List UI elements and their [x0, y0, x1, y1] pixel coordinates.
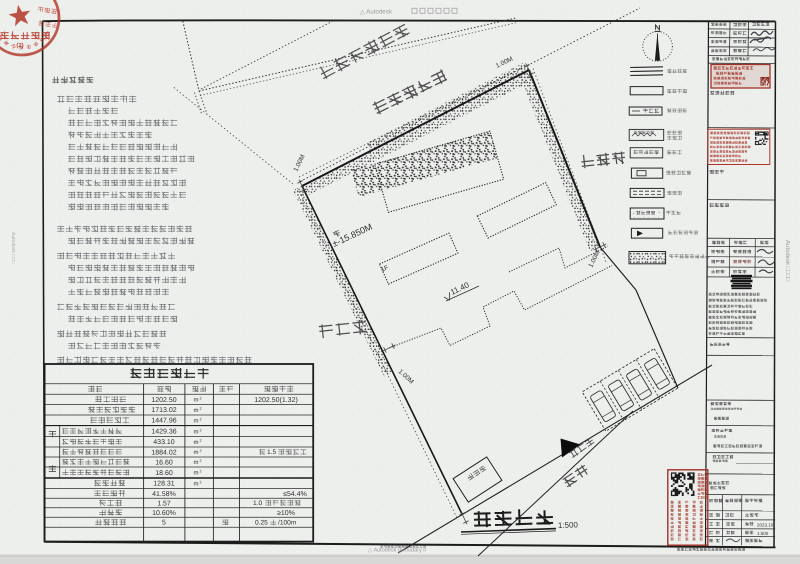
- svg-text:5: 5: [162, 520, 166, 527]
- svg-text:≤54.4%: ≤54.4%: [283, 491, 307, 498]
- svg-text:m: m: [194, 440, 199, 446]
- svg-text:≥10%: ≥10%: [277, 510, 295, 517]
- svg-text:2: 2: [200, 480, 202, 484]
- svg-text:41.58%: 41.58%: [152, 491, 176, 498]
- svg-text:2: 2: [200, 397, 202, 401]
- svg-text:Autodesk □□□: Autodesk □□□: [10, 232, 16, 263]
- svg-text:m: m: [194, 481, 199, 487]
- svg-text:128.31: 128.31: [153, 481, 175, 488]
- svg-text:2: 2: [200, 407, 202, 411]
- svg-text:2: 2: [200, 439, 202, 443]
- svg-text:2: 2: [200, 459, 202, 463]
- svg-text:2023.10: 2023.10: [757, 523, 774, 528]
- svg-text:△ Autodesk: △ Autodesk: [360, 9, 393, 16]
- svg-text:16.60: 16.60: [155, 459, 173, 466]
- svg-text:1:500: 1:500: [558, 520, 579, 530]
- svg-text:△ Autodesk gwoudary n: △ Autodesk gwoudary n: [368, 548, 426, 554]
- svg-text:1.57: 1.57: [157, 500, 171, 507]
- svg-text:2: 2: [200, 428, 202, 432]
- svg-text:1:500: 1:500: [757, 531, 769, 536]
- svg-text:/100m: /100m: [278, 519, 297, 526]
- svg-text:Autodesk □□□□: Autodesk □□□□: [784, 240, 791, 282]
- svg-text:2: 2: [200, 418, 202, 422]
- svg-text:10.60%: 10.60%: [152, 510, 176, 517]
- svg-text:m: m: [194, 408, 199, 414]
- svg-text:m: m: [194, 450, 199, 456]
- svg-text:1429.36: 1429.36: [151, 429, 176, 436]
- svg-text:1447.96: 1447.96: [151, 418, 176, 425]
- svg-text:0.25: 0.25: [255, 519, 268, 526]
- svg-text:1884.02: 1884.02: [151, 449, 176, 456]
- svg-text:m: m: [194, 398, 199, 404]
- svg-text:m: m: [194, 429, 199, 435]
- svg-text:1713.02: 1713.02: [151, 407, 176, 414]
- svg-text:m: m: [194, 419, 199, 425]
- svg-text:18.60: 18.60: [155, 470, 173, 477]
- svg-text:1202.50: 1202.50: [151, 397, 176, 404]
- svg-text:1.5: 1.5: [267, 449, 276, 456]
- svg-text:1202.50(1.32): 1202.50(1.32): [254, 396, 298, 404]
- svg-text:2: 2: [200, 449, 202, 453]
- svg-text:1.0: 1.0: [253, 500, 262, 507]
- svg-text:2: 2: [200, 470, 202, 474]
- svg-text:433.10: 433.10: [153, 439, 175, 446]
- svg-text:m: m: [194, 471, 199, 477]
- svg-text:m: m: [194, 460, 199, 466]
